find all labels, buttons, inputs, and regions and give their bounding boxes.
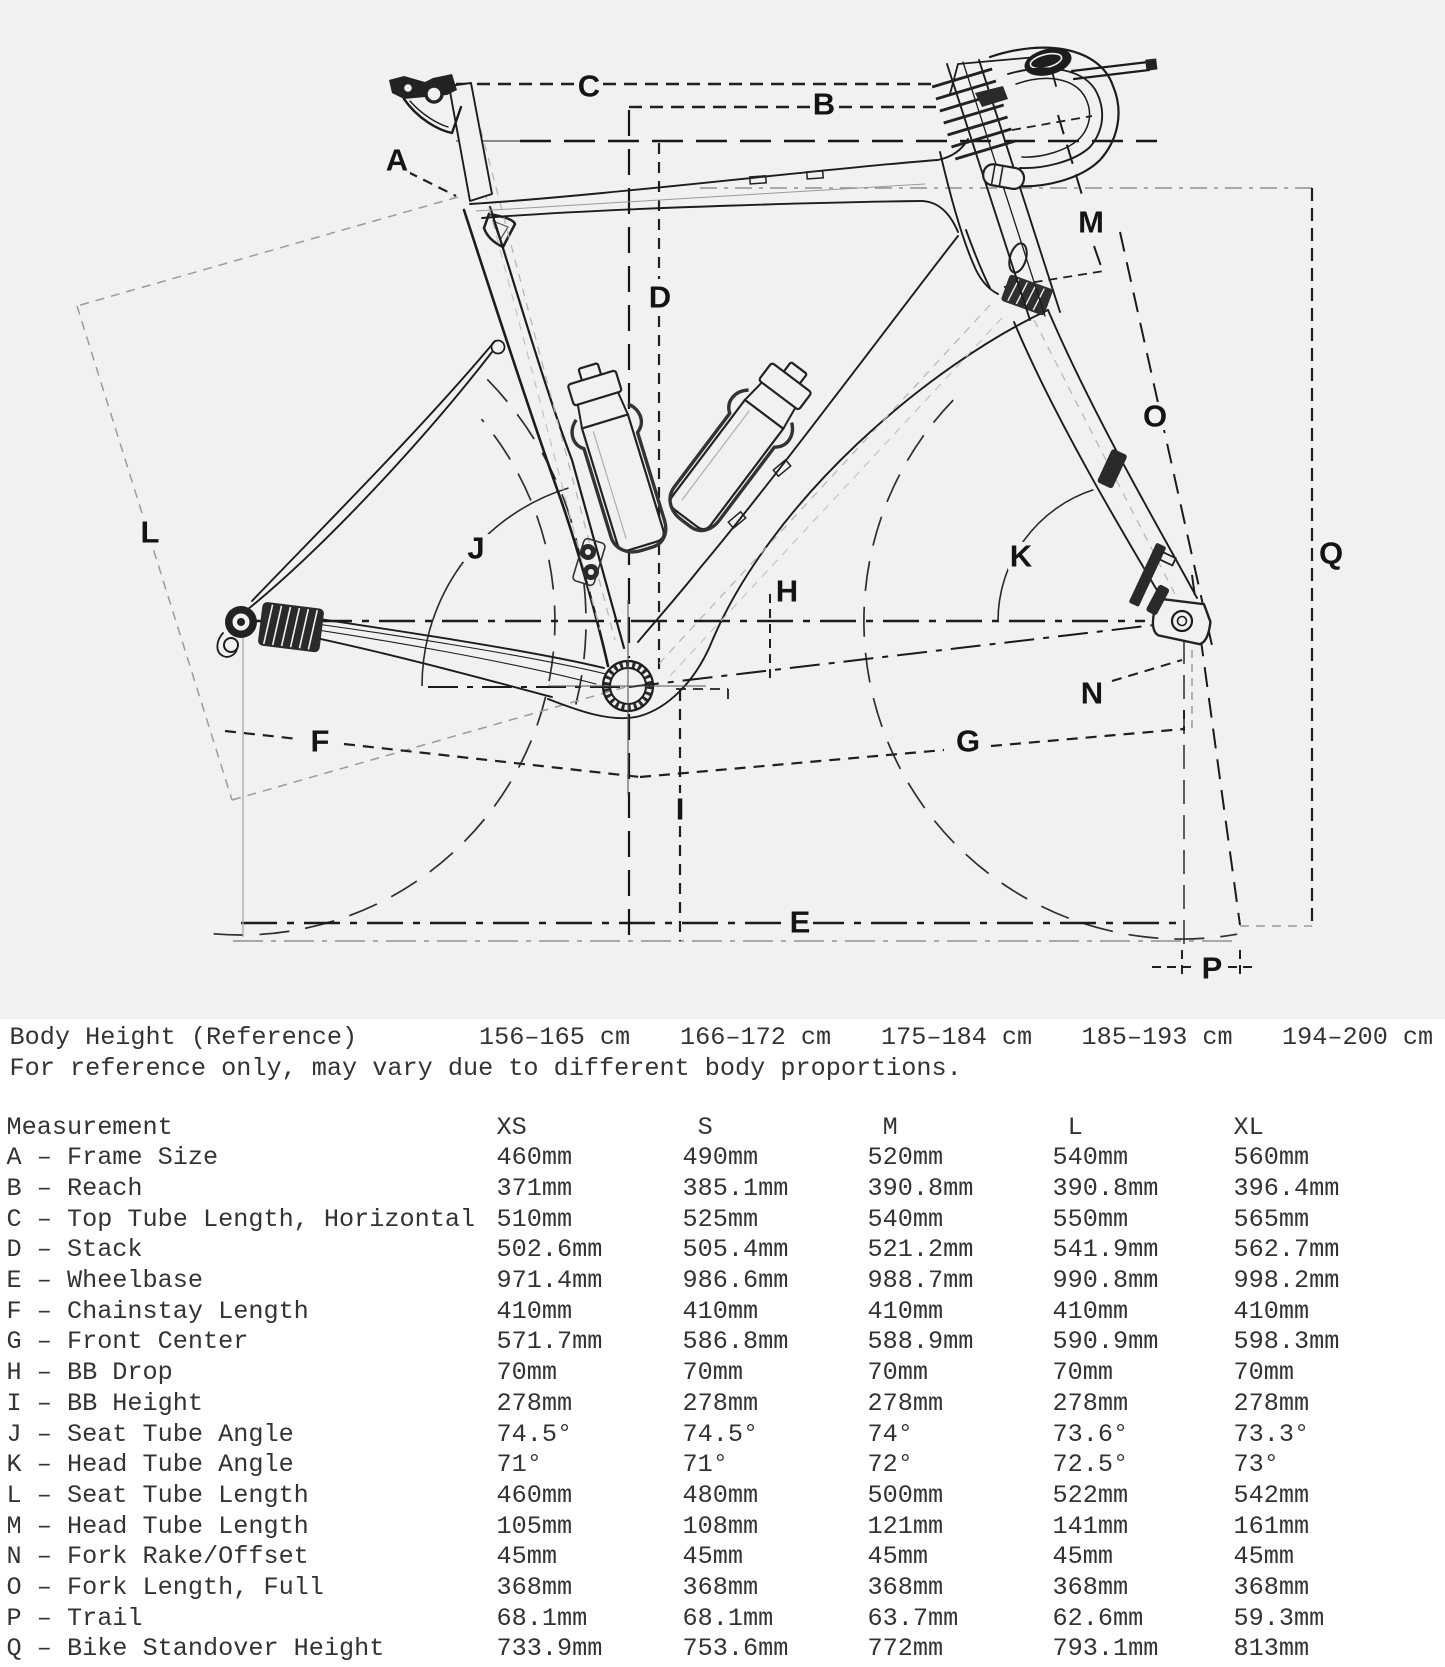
svg-text:G: G bbox=[956, 724, 980, 759]
svg-text:E: E bbox=[790, 905, 811, 940]
svg-text:A: A bbox=[386, 143, 408, 178]
svg-text:C: C bbox=[578, 69, 600, 104]
svg-text:P: P bbox=[1202, 951, 1223, 986]
svg-text:M: M bbox=[1078, 205, 1104, 240]
svg-text:Q: Q bbox=[1319, 536, 1343, 571]
svg-text:J: J bbox=[467, 531, 484, 566]
svg-text:F: F bbox=[311, 724, 330, 759]
svg-text:K: K bbox=[1010, 539, 1033, 574]
svg-text:N: N bbox=[1081, 676, 1103, 711]
svg-text:O: O bbox=[1143, 399, 1167, 434]
svg-text:H: H bbox=[776, 574, 798, 609]
svg-text:D: D bbox=[649, 280, 671, 315]
svg-text:L: L bbox=[141, 515, 160, 550]
svg-text:I: I bbox=[676, 792, 685, 827]
svg-text:B: B bbox=[813, 87, 835, 122]
